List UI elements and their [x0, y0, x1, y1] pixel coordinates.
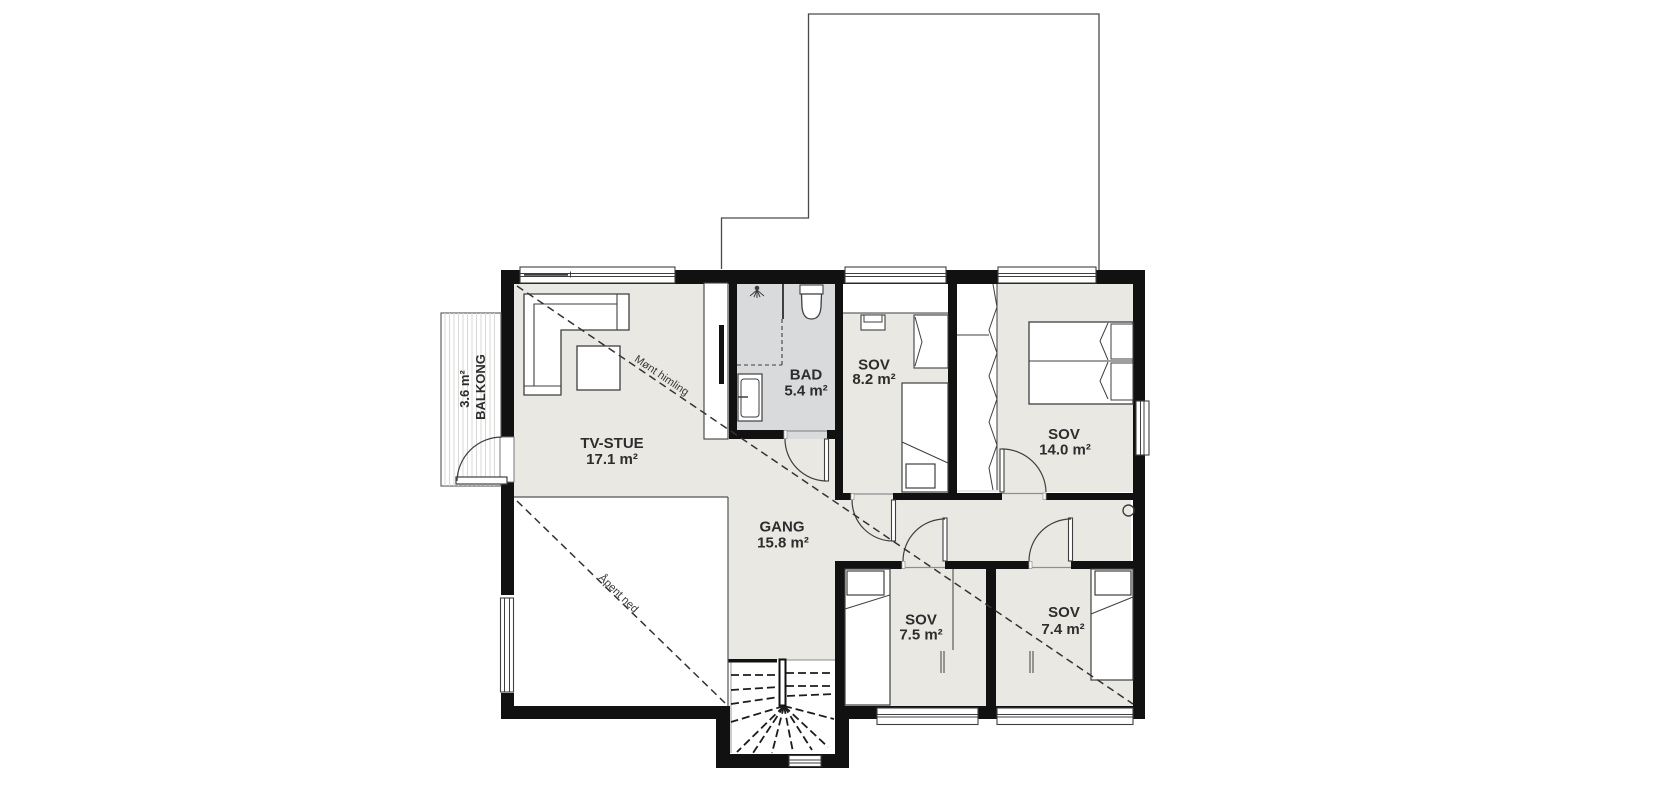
svg-text:SOV: SOV: [1048, 604, 1080, 621]
svg-text:15.8 m²: 15.8 m²: [757, 535, 809, 552]
svg-text:TV-STUE: TV-STUE: [580, 435, 643, 452]
svg-text:17.1 m²: 17.1 m²: [586, 451, 638, 468]
svg-text:7.5 m²: 7.5 m²: [899, 627, 942, 644]
svg-text:BAD: BAD: [790, 367, 823, 384]
svg-text:5.4 m²: 5.4 m²: [784, 383, 827, 400]
svg-text:7.4 m²: 7.4 m²: [1041, 621, 1084, 638]
svg-text:GANG: GANG: [760, 519, 805, 536]
svg-text:3.6 m²: 3.6 m²: [457, 370, 472, 408]
svg-text:SOV: SOV: [1048, 426, 1080, 443]
svg-text:Åpent ned: Åpent ned: [596, 571, 641, 615]
svg-text:8.2 m²: 8.2 m²: [852, 371, 895, 388]
svg-text:BALKONG: BALKONG: [473, 354, 488, 420]
svg-text:14.0 m²: 14.0 m²: [1039, 442, 1091, 459]
